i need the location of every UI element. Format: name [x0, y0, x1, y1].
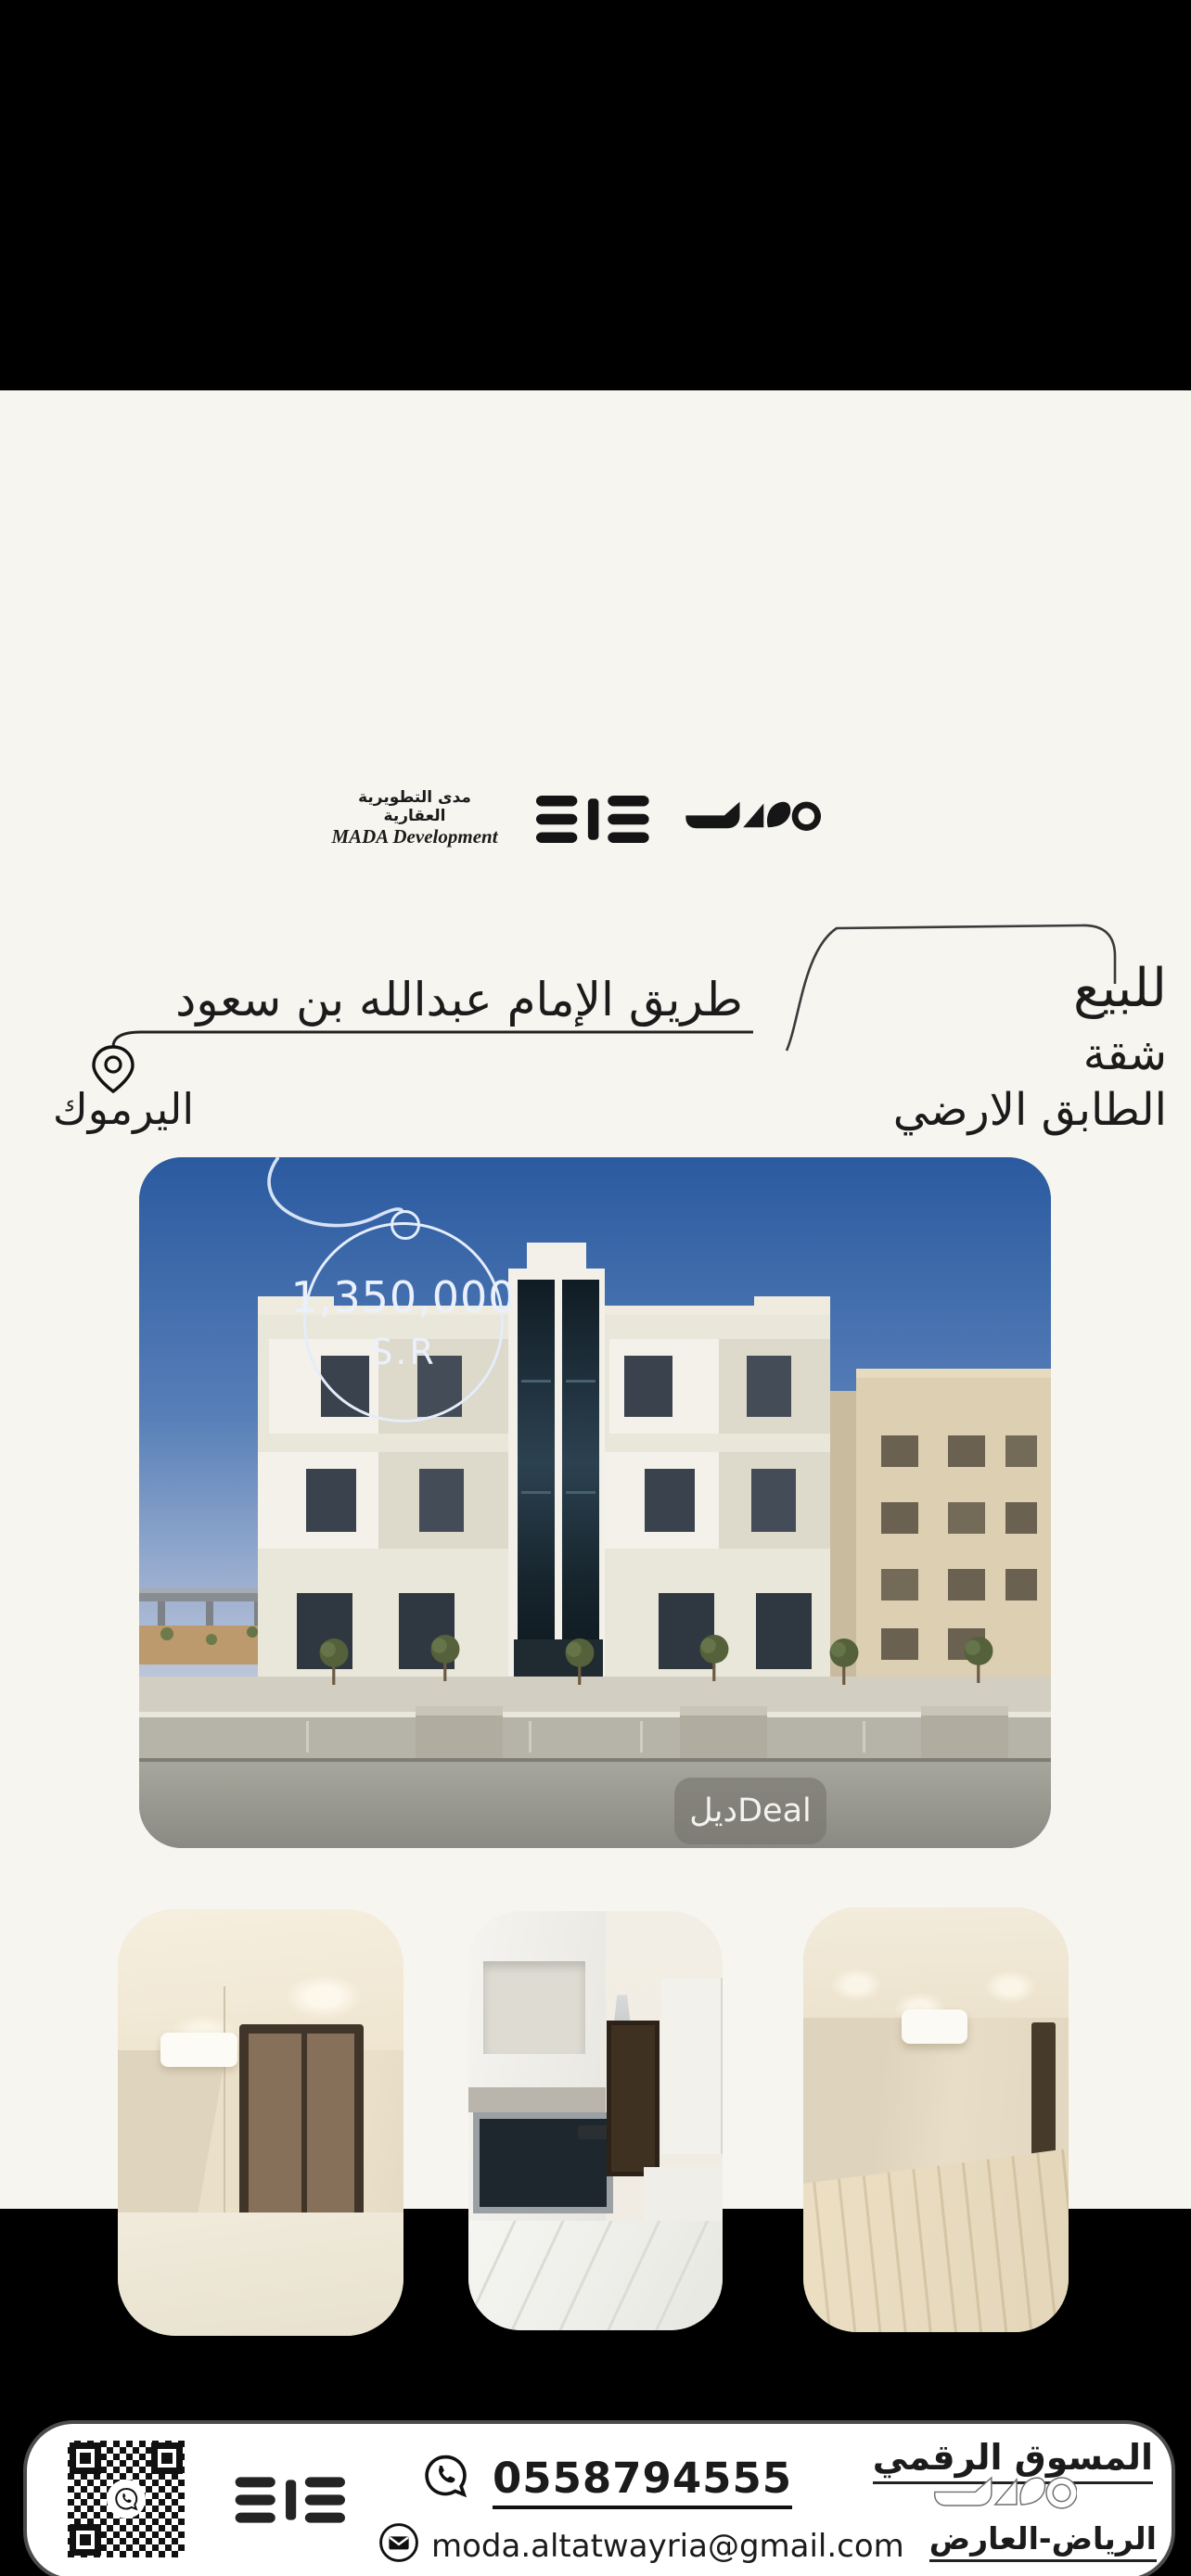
deal-watermark-text: ديلDeal [689, 1792, 812, 1830]
price-value: 1,350,000 [290, 1272, 516, 1322]
qr-finder [70, 2524, 101, 2556]
marketer-location: الرياض-العارض [929, 2520, 1157, 2562]
kitchen-window [607, 2021, 660, 2176]
contact-bar: 0558794555 moda.altatwayria@gmail.com ال… [23, 2420, 1175, 2576]
whatsapp-icon [113, 2486, 139, 2512]
kitchen-cabinets-right [661, 1978, 723, 2154]
bars-logo-icon [234, 2477, 345, 2523]
phone-screenshot: مدى التطويرية العقارية MADA Development … [0, 0, 1191, 2576]
brand-logo: مدى التطويرية العقارية MADA Development [327, 789, 503, 848]
room-corner-line [224, 1986, 225, 2225]
district-label: اليرموك [45, 1084, 202, 1134]
phone-number-link[interactable]: 0558794555 [493, 2454, 792, 2509]
interior-photo-hall [803, 1907, 1069, 2332]
building-photo: 1,350,000 S.R ديلDeal [139, 1157, 1051, 1848]
room-window [239, 2024, 364, 2226]
kitchen-floor [468, 2221, 723, 2330]
property-type-label: شقة [1083, 1028, 1167, 1080]
qr-finder [151, 2442, 183, 2474]
qr-whatsapp-badge [107, 2480, 146, 2519]
flyer-background: مدى التطويرية العقارية MADA Development … [0, 390, 1191, 2209]
bars-logo-icon [534, 796, 649, 843]
qr-code [64, 2437, 188, 2561]
hall-ceiling [803, 1907, 1069, 2018]
road-underline [113, 1032, 753, 1047]
brand-name-english: MADA Development [327, 825, 503, 848]
email-link[interactable]: moda.altatwayria@gmail.com [431, 2528, 904, 2565]
hall-wood-floor [803, 2136, 1069, 2332]
price-tag-string [139, 1157, 1051, 1278]
kitchen-counter-band [468, 2087, 606, 2112]
price-currency: S.R [370, 1332, 437, 1372]
ac-unit [160, 2033, 237, 2067]
room-floor [118, 2213, 403, 2336]
callout-bracket-line [787, 925, 1115, 1051]
email-icon [378, 2522, 419, 2563]
deal-watermark-badge: ديلDeal [674, 1778, 826, 1844]
brand-name-arabic: مدى التطويرية العقارية [327, 789, 503, 825]
whatsapp-icon [421, 2452, 469, 2500]
sale-label: للبيع [1073, 958, 1167, 1019]
floor-label: الطابق الارضي [893, 1084, 1167, 1136]
kitchen-niche [483, 1961, 585, 2053]
mada-logo-mark-outline-icon [928, 2465, 1077, 2517]
road-name-label: طريق الإمام عبدالله بن سعود [139, 973, 779, 1027]
mada-logo-mark-icon [680, 790, 821, 838]
interior-photo-kitchen [468, 1911, 723, 2330]
interior-photo-room [118, 1909, 403, 2336]
qr-finder [70, 2442, 101, 2474]
ac-unit [902, 2009, 968, 2044]
price-tag: 1,350,000 S.R [303, 1222, 504, 1422]
